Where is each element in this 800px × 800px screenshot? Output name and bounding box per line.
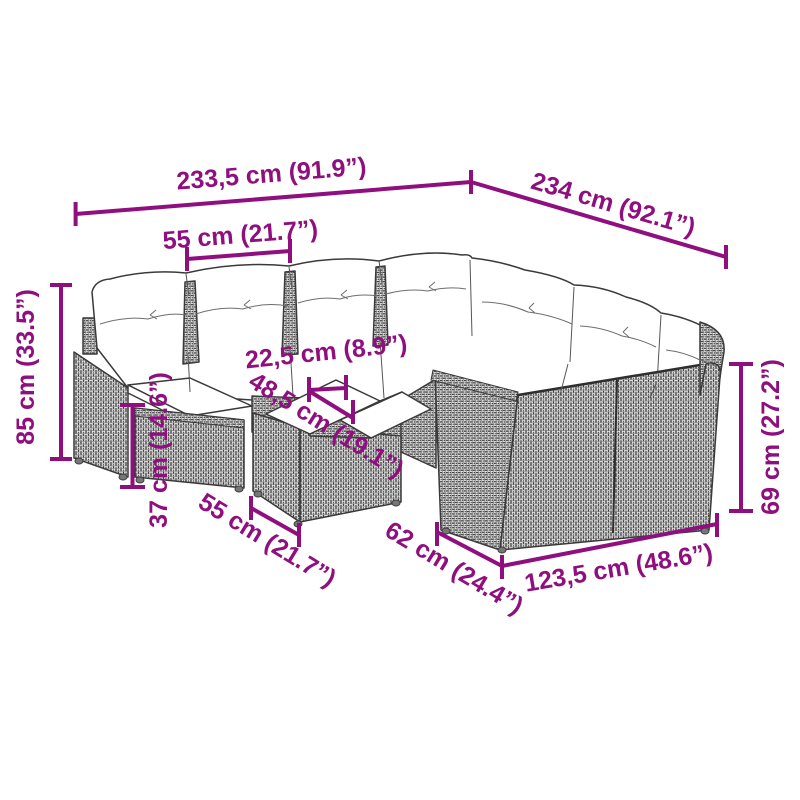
svg-text:85 cm (33.5”): 85 cm (33.5”) — [12, 289, 40, 445]
svg-text:123,5 cm (48.6”): 123,5 cm (48.6”) — [522, 539, 714, 598]
svg-text:55 cm (21.7”): 55 cm (21.7”) — [162, 215, 319, 255]
svg-text:69 cm (27.2”): 69 cm (27.2”) — [757, 359, 785, 515]
svg-text:233,5 cm (91.9”): 233,5 cm (91.9”) — [175, 152, 367, 195]
svg-text:37 cm (14.6”): 37 cm (14.6”) — [145, 372, 173, 528]
